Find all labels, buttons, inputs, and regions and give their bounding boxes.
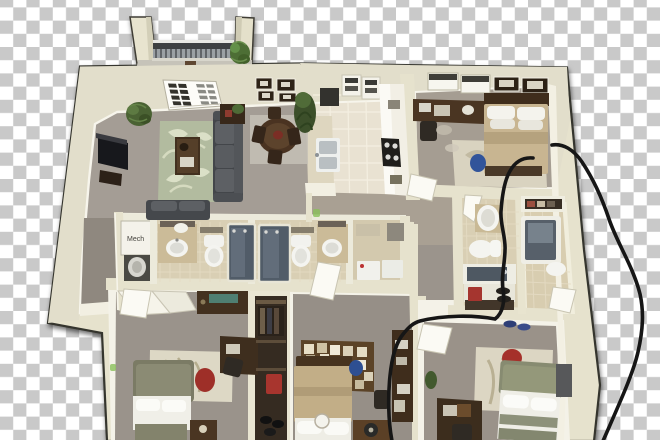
svg-text:Mech: Mech: [127, 236, 144, 243]
